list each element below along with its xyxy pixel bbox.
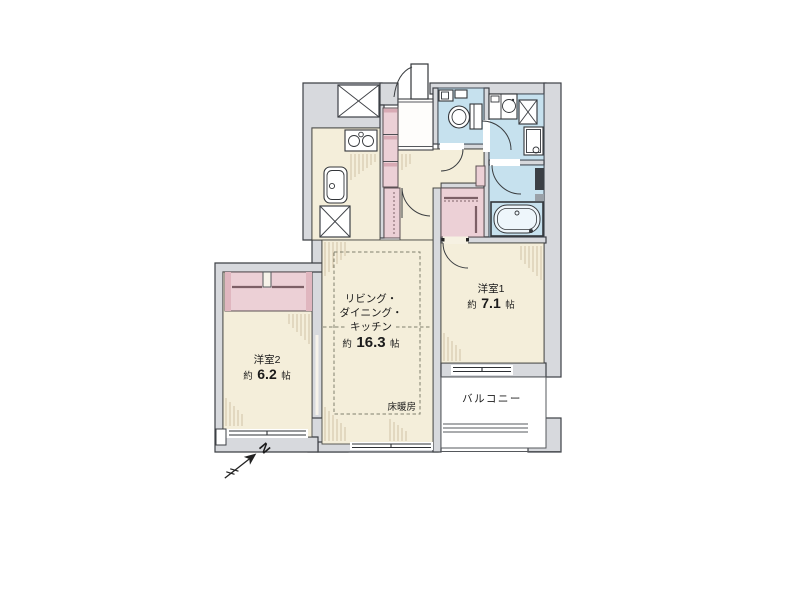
small-closet-strip <box>476 166 485 186</box>
bath-counter <box>535 194 544 201</box>
entrance-door <box>411 64 428 99</box>
compass-shaft <box>225 459 249 478</box>
shower-panel <box>535 168 544 190</box>
wall-right <box>544 83 561 377</box>
bathtub-rim <box>494 205 540 233</box>
bedroom2-step-notch <box>216 429 226 445</box>
floor-plan-svg: リビング・ ダイニング・ キッチン 約 16.3 帖 洋室1 約 7.1 帖 洋… <box>0 0 811 600</box>
entrance-floor <box>398 99 433 150</box>
door-jamb <box>442 238 445 242</box>
wall-center-vertical <box>433 183 441 452</box>
hall-storage-shelf <box>384 136 397 140</box>
balcony-floor <box>441 377 546 448</box>
door-jamb <box>466 238 469 242</box>
bathroom-door-opening <box>490 159 520 166</box>
toilet-shelf <box>455 90 467 98</box>
hall-storage-shelf <box>384 109 397 113</box>
bedroom2-sliding-door <box>316 335 319 415</box>
ldk-size-prefix: 約 <box>342 338 352 350</box>
stove <box>345 130 377 151</box>
floor-plan-page: リビング・ ダイニング・ キッチン 約 16.3 帖 洋室1 約 7.1 帖 洋… <box>0 0 811 600</box>
ldk-size-value: 16.3 <box>356 334 385 351</box>
ldk-size-unit: 帖 <box>390 338 400 350</box>
washroom-door-opening <box>483 120 490 152</box>
label-floor-heating: 床暖房 <box>387 401 416 413</box>
bedroom1-door-opening <box>443 237 468 245</box>
label-bedroom1-name: 洋室1 <box>478 282 505 295</box>
wall-toilet-entrance <box>433 88 438 144</box>
bedroom2-closet-notch <box>263 272 271 287</box>
bath-drain <box>529 229 533 233</box>
toilet-door-opening <box>440 143 464 150</box>
walk-in-closet <box>441 188 484 237</box>
wall-entrance-stub <box>380 83 398 105</box>
label-ldk-line2: ダイニング・ <box>340 306 403 319</box>
bedroom1-size-unit: 帖 <box>505 299 515 311</box>
hall-storage <box>383 108 398 187</box>
bedroom2-size-prefix: 約 <box>243 370 253 382</box>
wall-bath-left <box>484 88 489 237</box>
label-bedroom2-name: 洋室2 <box>254 353 281 366</box>
label-ldk-line3: キッチン <box>350 321 392 333</box>
bedroom2-size-value: 6.2 <box>257 366 277 382</box>
hall-storage-2 <box>384 188 400 238</box>
label-balcony: バルコニー <box>462 393 522 405</box>
bedroom2-closet-end <box>306 272 312 311</box>
vanity-faucet <box>512 99 514 101</box>
vanity-sink <box>489 94 517 119</box>
bedroom1-size-prefix: 約 <box>467 299 477 311</box>
label-ldk-line1: リビング・ <box>345 292 398 305</box>
toilet-tank <box>470 104 482 129</box>
hall-storage-shelf <box>384 163 397 167</box>
bedroom2-size-unit: 帖 <box>281 370 291 382</box>
bedroom1-size-value: 7.1 <box>481 295 501 311</box>
bedroom2-closet-end <box>225 272 231 311</box>
